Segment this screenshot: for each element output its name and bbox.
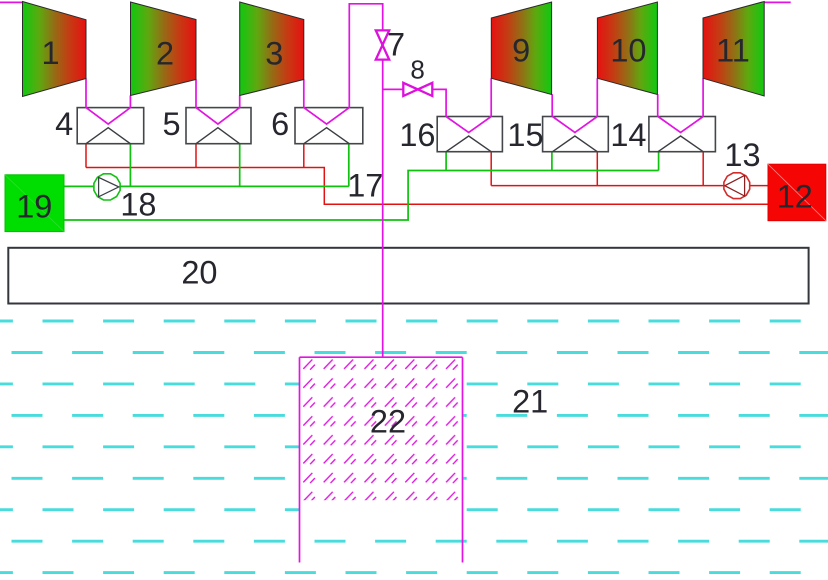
svg-text:12: 12 — [777, 178, 813, 214]
svg-text:8: 8 — [410, 55, 424, 85]
svg-text:14: 14 — [610, 117, 646, 153]
svg-text:3: 3 — [265, 36, 283, 72]
svg-text:9: 9 — [512, 33, 530, 69]
svg-text:5: 5 — [162, 106, 180, 142]
svg-text:17: 17 — [347, 167, 383, 203]
svg-text:19: 19 — [16, 189, 52, 225]
svg-text:13: 13 — [724, 137, 760, 173]
svg-text:22: 22 — [370, 404, 406, 440]
svg-text:18: 18 — [120, 187, 156, 223]
svg-text:4: 4 — [55, 106, 73, 142]
svg-text:2: 2 — [156, 36, 174, 72]
svg-text:20: 20 — [181, 254, 217, 290]
svg-text:1: 1 — [42, 35, 60, 71]
svg-text:16: 16 — [399, 117, 435, 153]
svg-text:15: 15 — [507, 117, 543, 153]
svg-text:7: 7 — [387, 27, 405, 63]
svg-text:10: 10 — [610, 33, 646, 69]
svg-text:21: 21 — [512, 383, 548, 419]
svg-text:6: 6 — [271, 106, 289, 142]
svg-text:11: 11 — [716, 33, 750, 69]
